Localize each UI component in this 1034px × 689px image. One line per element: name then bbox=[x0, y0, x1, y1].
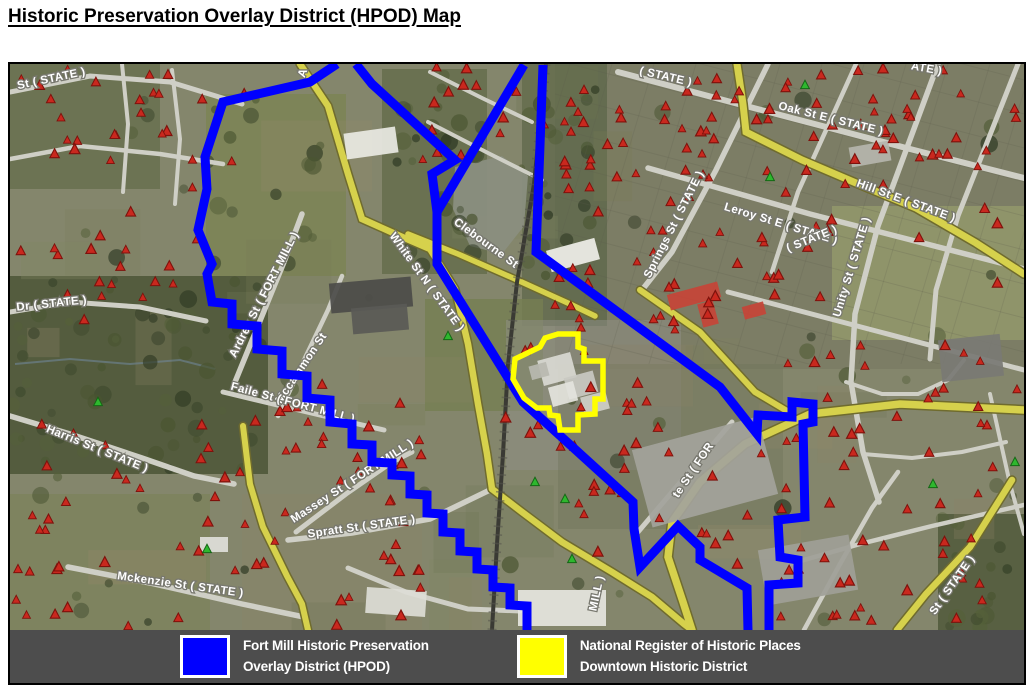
nr-label-line2: Downtown Historic District bbox=[580, 657, 801, 677]
legend-item-hpod: Fort Mill Historic Preservation Overlay … bbox=[180, 635, 429, 678]
hpod-legend-label: Fort Mill Historic Preservation Overlay … bbox=[243, 636, 429, 677]
legend-item-nr-district: National Register of Historic Places Dow… bbox=[517, 635, 801, 678]
nr-label-line1: National Register of Historic Places bbox=[580, 636, 801, 656]
page: Historic Preservation Overlay District (… bbox=[0, 0, 1034, 689]
hpod-swatch bbox=[180, 635, 230, 678]
hpod-label-line2: Overlay District (HPOD) bbox=[243, 657, 429, 677]
nr-legend-label: National Register of Historic Places Dow… bbox=[580, 636, 801, 677]
aerial-map: St ( STATE )A( STATE )Oak St E ( STATE )… bbox=[10, 64, 1024, 630]
map-frame: St ( STATE )A( STATE )Oak St E ( STATE )… bbox=[8, 62, 1026, 685]
hpod-label-line1: Fort Mill Historic Preservation bbox=[243, 636, 429, 656]
nr-district-swatch bbox=[517, 635, 567, 678]
page-title: Historic Preservation Overlay District (… bbox=[0, 0, 1034, 28]
map-legend: Fort Mill Historic Preservation Overlay … bbox=[10, 630, 1024, 683]
